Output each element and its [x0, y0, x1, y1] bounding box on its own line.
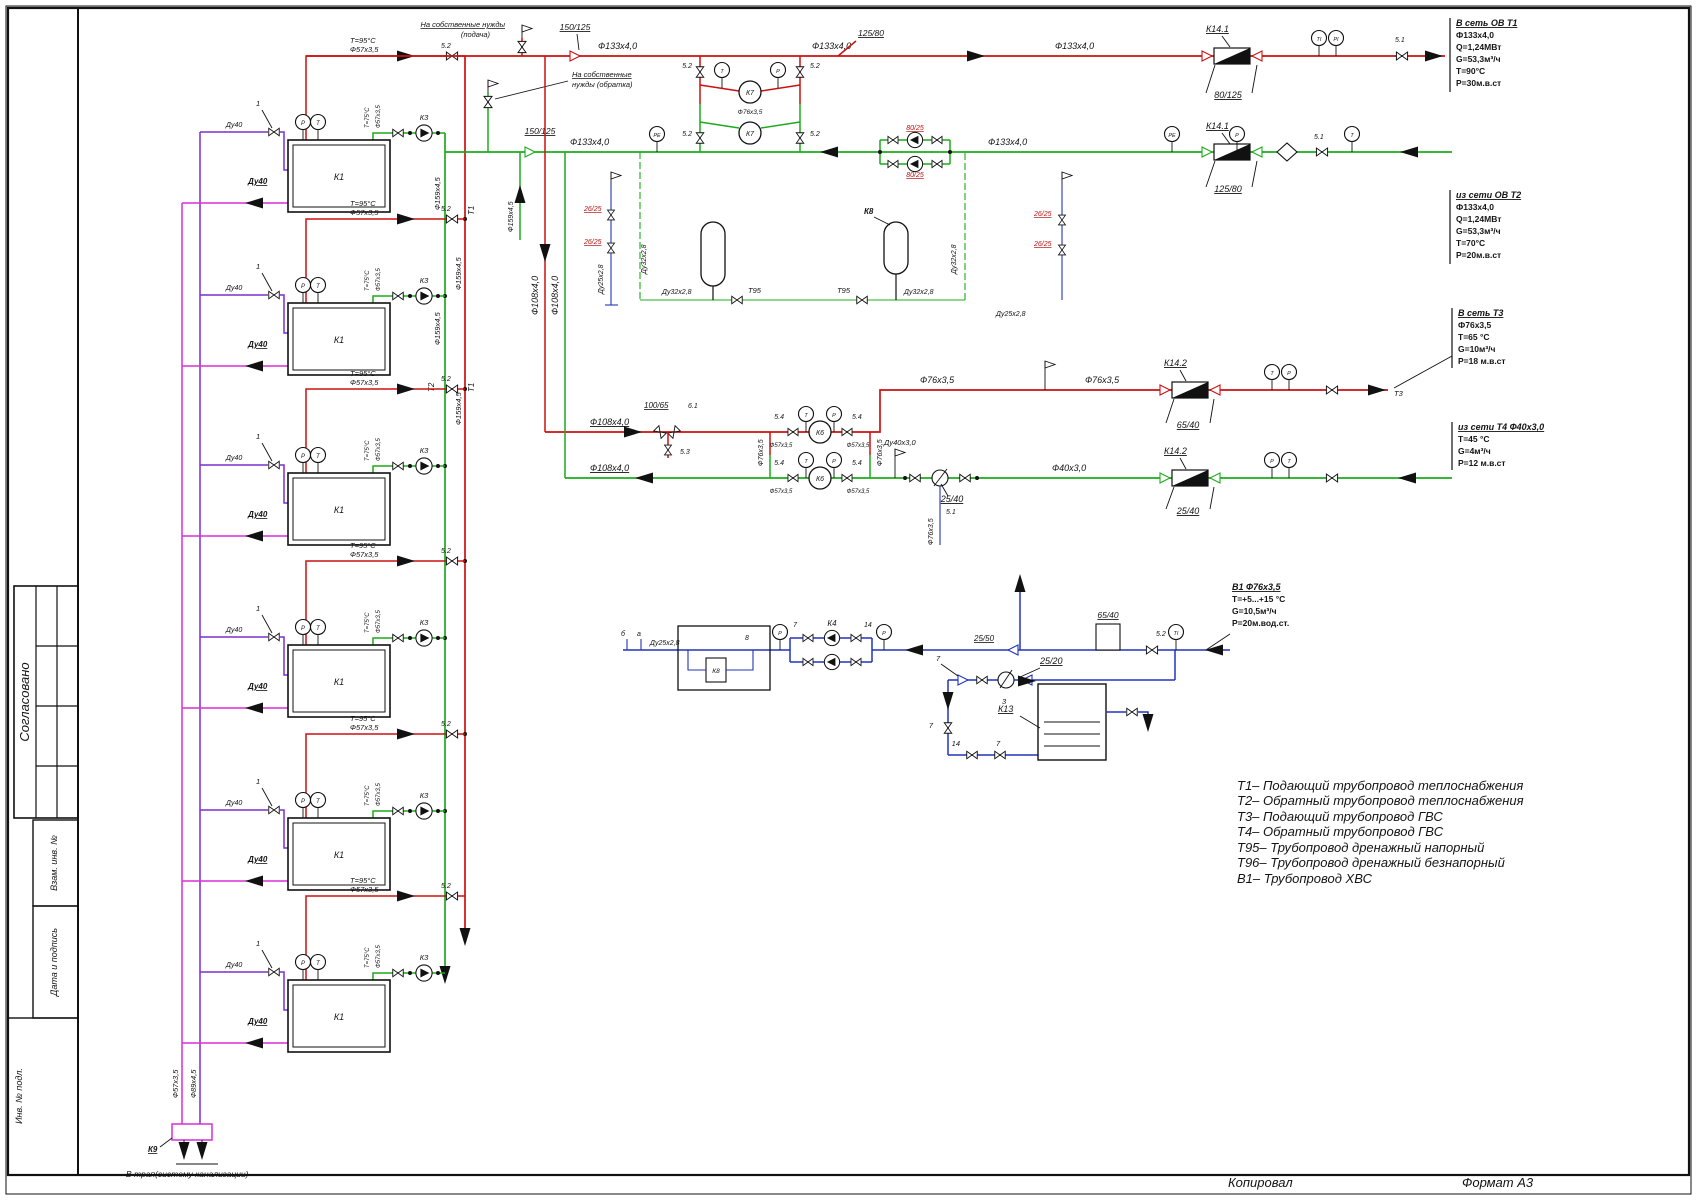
annotation-line: Ф76х3,5 [1458, 320, 1492, 330]
valve-icon [967, 751, 978, 759]
pipe-size-label: Ф57х3,5 [770, 489, 793, 495]
equipment-label: К1 [334, 1012, 344, 1022]
reducer-icon [1202, 147, 1212, 157]
valve-tag: 8 [745, 635, 749, 642]
annotation-line: Р=12 м.в.ст [1458, 458, 1506, 468]
line-name-label: Т3 [1394, 389, 1404, 398]
pipe-size-label: Ду40 [225, 800, 242, 807]
pipe-size-label: Ф57х3,5 [376, 268, 382, 291]
flow-arrow-icon [440, 966, 451, 984]
flow-limiter-icon [1214, 144, 1250, 160]
flow-limiter-icon [1172, 382, 1208, 398]
pipe-size-label: Ду32х2,8 [951, 244, 958, 275]
valve-icon [851, 658, 861, 665]
valve-icon [977, 676, 988, 684]
building-4: 5.2 Т=95°С Ф57х3,5 К3 Р Т Т=75°С Ф57х3,5… [182, 541, 465, 717]
valve-icon [446, 892, 457, 900]
gauge-icon [311, 448, 326, 474]
valve-icon [393, 634, 404, 642]
pump-icon [416, 965, 432, 981]
valve-icon [269, 968, 280, 976]
valve-icon [1326, 386, 1337, 394]
pipe-size-label: Ф57х3,5 [847, 489, 870, 495]
equipment-label: К3 [420, 446, 429, 455]
valve-icon [851, 634, 861, 641]
pipe-size-label: Ф76х3,5 [1085, 375, 1120, 385]
temp-label: Т=75°С [365, 947, 371, 968]
valve-icon [393, 807, 404, 815]
pipe-size-label: Ф57х3,5 [350, 208, 379, 217]
flow-arrow-icon [397, 556, 415, 567]
building-5: 5.2 Т=95°С Ф57х3,5 К3 Р Т Т=75°С Ф57х3,5… [182, 714, 465, 890]
pipe-size-label: Ду40 [247, 1017, 268, 1026]
valve-icon [1146, 646, 1157, 654]
flow-arrow-icon [1398, 473, 1416, 484]
equipment-label: К6 [816, 476, 824, 483]
valve-tag: 5.1 [1314, 134, 1324, 141]
annotation-title: из сети ОВ Т2 [1456, 190, 1521, 200]
flow-arrow-icon [635, 473, 653, 484]
drawing-page: Согласовано Взам. инв. № Дата и подпись … [0, 0, 1697, 1200]
pipe-size-label: Ф57х3,5 [350, 723, 379, 732]
pump-icon [416, 803, 432, 819]
pump-icon [416, 458, 432, 474]
pipe-size-label: Ду32х2,8 [903, 289, 934, 296]
valve-tag: 5.1 [946, 509, 956, 516]
pipe-size-label: Ф57х3,5 [376, 783, 382, 806]
expansion-tank [884, 222, 908, 274]
cold-water-b1-zone: б а Ду25х2,8 К8 8 К4 7 14 Р Р 25/50 65/4… [621, 574, 1230, 760]
annotation-line: G=10,5м³/ч [1232, 606, 1277, 616]
valve-icon [393, 462, 404, 470]
reducer-icon [1160, 473, 1170, 483]
legend-item: Т96– Трубопровод дренажный безнапорный [1237, 855, 1505, 870]
valve-icon [269, 806, 280, 814]
valve-icon [393, 129, 404, 137]
flow-arrow-icon [1015, 574, 1026, 592]
valve-icon [842, 428, 852, 435]
pipe-size-label: Ф57х3,5 [770, 443, 793, 449]
valve-tag: 1 [256, 604, 260, 613]
pipe-size-label: Ду40 [225, 455, 242, 462]
annotation-line: Ф133х4,0 [1456, 30, 1494, 40]
pipe-size-label: Ф57х3,5 [376, 610, 382, 633]
valve-icon [484, 96, 492, 107]
valve-icon [1316, 148, 1327, 156]
equipment-label: К9 [148, 1145, 158, 1154]
valve-icon [796, 133, 804, 144]
valve-tag: 1 [256, 939, 260, 948]
equipment-label: К7 [746, 131, 755, 138]
pipe-size-label: Ду25х2,8 [598, 264, 605, 295]
gauge-icon [1265, 365, 1280, 391]
drain-outlet-k9: К9 В трап(систему канализации) [126, 1124, 249, 1179]
equipment-label: К3 [420, 953, 429, 962]
pipe-size-label: Ф57х3,5 [350, 550, 379, 559]
annotation-line: Т=70°С [1456, 238, 1485, 248]
gauge-letter: Р [1270, 459, 1274, 465]
valve-tag: 5.2 [441, 883, 451, 890]
gauge-letter: ТI [1317, 37, 1322, 43]
reducer-label: 65/40 [1097, 610, 1119, 620]
dhw-supply-t3: Ф108х4,0 Ф108х4,0 100/65 6.1 5.3 Ф76х3,5… [530, 56, 1404, 458]
equipment-label: К14.1 [1206, 24, 1229, 34]
legend-item: Т95– Трубопровод дренажный напорный [1237, 840, 1484, 855]
valve-tag: 5.2 [682, 131, 692, 138]
gauge-icon [296, 793, 311, 819]
flow-limiter-icon [1214, 48, 1250, 64]
valve-icon [932, 160, 942, 167]
valve-tag: 5.2 [441, 206, 451, 213]
valve-icon [944, 723, 952, 734]
annotation-line: Р=20м.в.ст [1456, 250, 1501, 260]
pipe-size-label: Ду40 [225, 122, 242, 129]
reducer-label: 26/25 [1033, 211, 1052, 218]
flow-arrow-icon [1425, 51, 1443, 62]
reducer-label: 100/65 [644, 401, 669, 410]
valve-icon [446, 557, 457, 565]
gauge-icon [1312, 31, 1327, 57]
valve-tag: 1 [256, 99, 260, 108]
titleblock-label: Согласовано [17, 662, 32, 741]
pipe-size-label: Ду32х2,8 [641, 244, 648, 275]
flow-arrow-icon [515, 185, 526, 203]
temp-label: Т=95°С [350, 876, 376, 885]
line-name-label: Т95 [748, 286, 762, 295]
pump-icon [824, 654, 839, 669]
reducer-label: 65/40 [1177, 420, 1200, 430]
gauge-icon [296, 620, 311, 646]
valve-icon [393, 969, 404, 977]
flow-arrow-icon [460, 928, 471, 946]
flow-arrow-icon [1368, 385, 1386, 396]
pipe-size-label: Ф57х3,5 [847, 443, 870, 449]
flow-arrow-icon [245, 1038, 263, 1049]
flow-arrow-icon [245, 876, 263, 887]
equipment-label: К14.1 [1206, 121, 1229, 131]
gauge-icon [311, 620, 326, 646]
annotation-b1: В1 Ф76х3,5 Т=+5...+15 °С G=10,5м³/ч Р=20… [1206, 582, 1289, 650]
equipment-label: К1 [334, 172, 344, 182]
gauge-letter: Р [832, 413, 836, 419]
vent-flag-icon [895, 449, 905, 462]
equipment-label: К3 [420, 113, 429, 122]
pipe-size-label: Ф57х3,5 [350, 885, 379, 894]
annotation-line: Р=20м.вод.ст. [1232, 618, 1289, 628]
annotation-title: В сеть Т3 [1458, 308, 1503, 318]
pipe-size-label: Ф57х3,5 [376, 438, 382, 461]
pipe-size-label: Ф76х3,5 [877, 439, 884, 466]
reducer-label: 150/125 [560, 22, 591, 32]
gauge-icon [773, 625, 788, 651]
gauge-letter: Р [301, 961, 305, 967]
annotation-line: G=53,3м³/ч [1456, 226, 1501, 236]
pipe-size-label: Ф159х4,5 [454, 257, 463, 290]
valve-tag: 5.1 [1395, 37, 1405, 44]
equipment-label: К3 [420, 791, 429, 800]
equipment-label: К6 [816, 430, 824, 437]
equipment-label: К8 [712, 668, 720, 675]
valve-icon [269, 291, 280, 299]
equipment-label: К1 [334, 677, 344, 687]
gauge-icon [296, 448, 311, 474]
valve-tag: 7 [936, 654, 941, 663]
titleblock-label: Взам. инв. № [49, 835, 59, 891]
equipment-label: К3 [420, 276, 429, 285]
pipe-size-label: Ду40 [225, 627, 242, 634]
legend-item: Т1– Подающий трубопровод теплоснабжения [1237, 778, 1523, 793]
gauge-letter: Р [301, 284, 305, 290]
gauge-icon [715, 63, 730, 89]
gauge-letter: РI [1333, 37, 1339, 43]
building-1: 5.2 Т=95°С Ф57х3,5 К3 Р Т Т=75°С Ф57х3,5… [182, 36, 465, 212]
flow-limiter-icon [1172, 470, 1208, 486]
valve-icon [665, 445, 672, 455]
pipe-size-label: Ф89х4,5 [189, 1069, 198, 1098]
reducer-icon [1008, 645, 1018, 655]
pipe-size-label: Ф159х4,5 [508, 201, 515, 232]
gauge-icon [1345, 127, 1360, 153]
annotation-t1: В сеть ОВ Т1 Ф133х4,0 Q=1,24МВт G=53,3м³… [1450, 18, 1517, 92]
annotation-line: Ф133х4,0 [1456, 202, 1494, 212]
vent-flag-icon [488, 80, 498, 93]
valve-tag: 5.4 [774, 414, 784, 421]
pipe-size-label: Ф76х3,5 [920, 375, 955, 385]
temp-label: Т=95°С [350, 36, 376, 45]
valve-icon [842, 474, 852, 481]
valve-icon [960, 474, 971, 482]
flow-arrow-icon [197, 1142, 208, 1160]
equipment-label: К4 [827, 619, 837, 628]
pipe-size-label: Ду25х2,8 [649, 640, 680, 647]
gauge-icon [296, 955, 311, 981]
valve-icon [269, 128, 280, 136]
gauge-letter: Р [301, 799, 305, 805]
pipe-size-label: Ф108х4,0 [530, 276, 540, 315]
heat-exchanger-k7-block: 5.2 5.2 5.2 5.2 Т Р К7 Ф76х3,5 К7 [682, 56, 820, 152]
equipment-label: К1 [334, 335, 344, 345]
gauge-icon [1282, 365, 1297, 391]
valve-tag: 6.1 [688, 403, 698, 410]
flow-arrow-icon [245, 198, 263, 209]
line-name-label: Т1 [467, 383, 476, 392]
vent-flag-icon [1062, 172, 1072, 185]
valve-tag: а [637, 631, 641, 638]
valve-icon [446, 385, 457, 393]
pipe-size-label: Ф159х4,5 [433, 177, 442, 210]
reducer-label: 26/25 [1033, 241, 1052, 248]
valve-icon [788, 474, 798, 481]
annotation-line: Q=1,24МВт [1456, 42, 1501, 52]
annotation-line: Т=45 °С [1458, 434, 1490, 444]
temp-label: Т=75°С [365, 270, 371, 291]
pipe-size-label: Ф133х4,0 [1055, 41, 1094, 51]
valve-icon [910, 474, 921, 482]
reducer-icon [1252, 147, 1262, 157]
pipe-size-label: Ф57х3,5 [350, 378, 379, 387]
water-meter [1096, 624, 1120, 650]
valve-icon [446, 215, 457, 223]
valve-icon [1059, 215, 1066, 225]
legend: Т1– Подающий трубопровод теплоснабжения … [1237, 778, 1524, 886]
flow-arrow-icon [943, 692, 954, 710]
valve-icon [608, 243, 615, 253]
gauge-letter: Р [776, 69, 780, 75]
gauge-icon [1282, 453, 1297, 479]
gauge-icon [311, 793, 326, 819]
reducer-label: 26/25 [583, 206, 602, 213]
pipe-size-label: Ф133х4,0 [988, 137, 1027, 147]
reducer-icon [1210, 473, 1220, 483]
pipe-size-label: Ф108х4,0 [550, 276, 560, 315]
note-label: На собственные нужды [420, 20, 505, 29]
valve-icon [732, 296, 743, 304]
gauge-icon [1169, 625, 1184, 651]
gauge-icon [1265, 453, 1280, 479]
pump-icon [416, 288, 432, 304]
dhw-return-t4: Ф108х4,0 Ф108х4,0 Ду40х3,0 25/40 Ф76х3,5… [550, 152, 1452, 545]
valve-tag: б [621, 630, 626, 638]
valve-tag: 5.2 [810, 131, 820, 138]
gauge-letter: Р [301, 454, 305, 460]
pipe-size-label: Ф133х4,0 [570, 137, 609, 147]
pipe-size-label: Ф57х3,5 [171, 1069, 180, 1098]
pipe-size-label: Ф57х3,5 [376, 105, 382, 128]
reducer-icon [958, 675, 968, 685]
valve-icon [788, 428, 798, 435]
annotation-title: В сеть ОВ Т1 [1456, 18, 1517, 28]
valve-tag: 5.3 [680, 449, 690, 456]
valve-icon [696, 133, 704, 144]
valve-tag: 7 [996, 739, 1001, 748]
gauge-icon [877, 625, 892, 651]
valve-tag: 5.2 [441, 548, 451, 555]
gauge-letter: Р [301, 626, 305, 632]
vent-flag-icon [522, 25, 532, 38]
gauge-letter: Р [778, 631, 782, 637]
supply-main-t1: На собственные нужды (подача) 150/125 Ф1… [306, 20, 1445, 100]
pressure-regulator-icon [998, 672, 1014, 688]
schematic-canvas: Согласовано Взам. инв. № Дата и подпись … [0, 0, 1697, 1200]
titleblock-label: Дата и подпись [49, 928, 59, 997]
flow-arrow-icon [245, 361, 263, 372]
reducer-label: 150/125 [525, 126, 556, 136]
gauge-icon [650, 127, 665, 153]
valve-tag: 5.4 [774, 460, 784, 467]
reducer-icon [525, 147, 535, 157]
valve-icon [696, 67, 704, 78]
valve-icon [518, 41, 526, 52]
pipe-size-label: Ф76х3,5 [928, 518, 935, 545]
valve-tag: 1 [256, 777, 260, 786]
temp-label: Т=95°С [350, 541, 376, 550]
valve-icon [803, 634, 813, 641]
pipe-size-label: Ф57х3,5 [350, 45, 379, 54]
valve-icon [888, 160, 898, 167]
gauge-letter: Р [1287, 371, 1291, 377]
flow-arrow-icon [397, 729, 415, 740]
gauge-icon [311, 955, 326, 981]
footer-text: Копировал [1228, 1175, 1293, 1190]
reducer-icon [570, 51, 580, 61]
gauge-icon [771, 63, 786, 89]
reducer-label: 25/50 [973, 634, 995, 643]
valve-icon [857, 296, 868, 304]
annotation-title: В1 Ф76х3,5 [1232, 582, 1282, 592]
reducer-label: 25/20 [1039, 656, 1063, 666]
gauge-icon [311, 115, 326, 141]
annotation-t2: из сети ОВ Т2 Ф133х4,0 Q=1,24МВт G=53,3м… [1450, 190, 1521, 264]
legend-item: Т3– Подающий трубопровод ГВС [1237, 809, 1443, 824]
gauge-letter: РЕ [653, 133, 661, 139]
legend-item: В1– Трубопровод ХВС [1237, 871, 1373, 886]
gauge-letter: РЕ [1168, 133, 1176, 139]
annotation-line: Q=1,24МВт [1456, 214, 1501, 224]
vent-flag-icon [611, 172, 621, 185]
flow-arrow-icon [179, 1142, 190, 1160]
valve-tag: 5.2 [810, 63, 820, 70]
temp-label: Т=75°С [365, 785, 371, 806]
valve-icon [446, 730, 457, 738]
flow-arrow-icon [1143, 714, 1154, 732]
reducer-label: 125/80 [1214, 184, 1242, 194]
flow-arrow-icon [245, 531, 263, 542]
gauge-icon [1165, 127, 1180, 153]
gauge-letter: ТI [1174, 631, 1179, 637]
pipe-size-label: Ф76х3,5 [758, 439, 765, 466]
line-name-label: Т1 [467, 206, 476, 215]
annotation-line: Т=90°С [1456, 66, 1485, 76]
valve-tag: 5.4 [852, 460, 862, 467]
pipe-size-label: Ду40 [247, 177, 268, 186]
valve-icon [608, 210, 615, 220]
flow-arrow-icon [397, 384, 415, 395]
footer-text: Формат А3 [1462, 1175, 1534, 1190]
annotation-line: Т=65 °С [1458, 332, 1490, 342]
valve-icon [1127, 708, 1138, 716]
gauge-icon [296, 278, 311, 304]
reducer-icon [1202, 51, 1212, 61]
annotation-t4: из сети Т4 Ф40х3,0 Т=45 °С G=4м³/ч Р=12 … [1452, 422, 1544, 470]
valve-tag: 14 [952, 739, 960, 748]
expansion-zone: К8 Т95 Т95 Ду32х2,8 Ду32х2,8 Ду32х2,8 Ду… [583, 152, 1072, 318]
annotation-line: Р=18 м.в.ст [1458, 356, 1506, 366]
pipe-size-label: Ду25х2,8 [995, 311, 1026, 318]
temp-label: Т=95°С [350, 714, 376, 723]
valve-tag: 5.2 [441, 376, 451, 383]
temp-label: Т=75°С [365, 107, 371, 128]
pump-icon [907, 156, 922, 171]
pump-icon [416, 125, 432, 141]
reducer-label: 80/25 [906, 125, 924, 132]
pipe-size-label: Ду32х2,8 [661, 289, 692, 296]
footer: Копировал Формат А3 [1228, 1175, 1534, 1190]
reducer-label: 25/40 [1176, 506, 1200, 516]
pipe-size-label: Ф57х3,5 [376, 945, 382, 968]
building-3: 5.2 Т=95°С Ф57х3,5 К3 Р Т Т=75°С Ф57х3,5… [182, 369, 465, 545]
flow-arrow-icon [624, 427, 642, 438]
gauge-icon [311, 278, 326, 304]
valve-tag: 5.4 [852, 414, 862, 421]
flow-arrow-icon [967, 51, 985, 62]
reducer-icon [1210, 385, 1220, 395]
gauge-icon [296, 115, 311, 141]
equipment-label: К1 [334, 850, 344, 860]
line-name-label: Т95 [837, 286, 851, 295]
reducer-label: 25/40 [940, 494, 964, 504]
legend-item: Т4– Обратный трубопровод ГВС [1237, 824, 1444, 839]
pipe-size-label: Ду40 [247, 510, 268, 519]
